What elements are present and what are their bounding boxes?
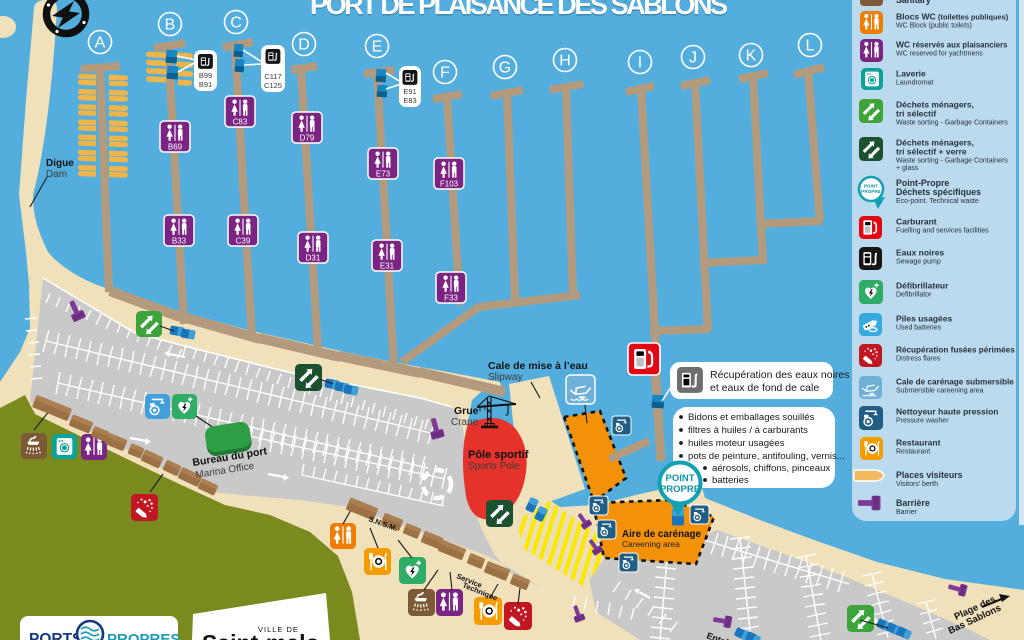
svg-text:WC reserved for yachtmens: WC reserved for yachtmens: [896, 51, 983, 58]
svg-text:Sanitary: Sanitary: [896, 0, 931, 5]
svg-text:PORT DE PLAISANCE DES SABLONS: PORT DE PLAISANCE DES SABLONS: [310, 0, 728, 20]
svg-text:E73: E73: [376, 170, 391, 179]
svg-text:Eco-point. Technical waste: Eco-point. Technical waste: [896, 198, 979, 205]
svg-text:Waste sorting - Garbage Contai: Waste sorting - Garbage Containers: [896, 158, 1008, 165]
svg-text:F33: F33: [444, 294, 458, 303]
svg-text:pots de peinture, antifouling,: pots de peinture, antifouling, vernis...: [688, 451, 845, 462]
svg-text:I: I: [638, 55, 642, 72]
svg-text:A: A: [95, 35, 106, 52]
svg-text:Sports Pole: Sports Pole: [468, 461, 520, 472]
svg-text:Eaux noires: Eaux noires: [896, 248, 944, 258]
svg-text:E31: E31: [380, 262, 395, 271]
svg-text:filtres à huiles / à carburant: filtres à huiles / à carburants: [688, 425, 808, 436]
svg-text:Pressure washer: Pressure washer: [896, 418, 949, 425]
svg-text:Restaurant: Restaurant: [896, 449, 930, 456]
svg-text:WC réservés aux plaisanciers: WC réservés aux plaisanciers: [896, 40, 1008, 50]
svg-text:POINT: POINT: [864, 184, 878, 189]
svg-text:Récupération des eaux noires: Récupération des eaux noires: [710, 369, 850, 381]
svg-text:Defibrillator: Defibrillator: [896, 292, 932, 299]
svg-text:Dam: Dam: [46, 169, 67, 180]
svg-text:L: L: [806, 38, 815, 55]
svg-text:Laundromat: Laundromat: [896, 80, 933, 87]
svg-text:Saint-malo: Saint-malo: [202, 630, 320, 640]
svg-text:batteries: batteries: [712, 475, 749, 486]
svg-text:G: G: [499, 60, 511, 77]
svg-text:Bidons et emballages souillés: Bidons et emballages souillés: [688, 412, 815, 423]
svg-text:C83: C83: [233, 118, 248, 127]
svg-text:E91: E91: [403, 87, 416, 96]
svg-text:Barrière: Barrière: [896, 498, 930, 508]
svg-text:tri sélectif + verre: tri sélectif + verre: [896, 147, 967, 157]
svg-text:Careening area: Careening area: [622, 539, 680, 549]
svg-text:B69: B69: [168, 143, 183, 152]
svg-text:C125: C125: [264, 81, 282, 90]
svg-text:Défibrillateur: Défibrillateur: [896, 281, 949, 291]
svg-text:F103: F103: [440, 180, 459, 189]
svg-text:Sewage pump: Sewage pump: [896, 259, 941, 266]
svg-text:Slipway: Slipway: [488, 372, 522, 383]
svg-text:Blocs WC (toilettes publiques): Blocs WC (toilettes publiques): [896, 12, 1009, 22]
svg-text:PROPRES: PROPRES: [107, 631, 180, 640]
svg-text:D79: D79: [300, 134, 315, 143]
svg-text:Used batteries: Used batteries: [896, 325, 942, 332]
svg-text:J: J: [689, 50, 697, 67]
svg-text:et eaux de fond de cale: et eaux de fond de cale: [710, 382, 819, 394]
svg-text:PORTS: PORTS: [29, 631, 82, 640]
svg-text:huiles moteur usagées: huiles moteur usagées: [688, 438, 785, 449]
svg-text:F: F: [440, 65, 450, 82]
svg-text:B99: B99: [199, 71, 212, 80]
svg-text:Waste sorting - Garbage Contai: Waste sorting - Garbage Containers: [896, 120, 1008, 127]
svg-text:Visitors’ berth: Visitors’ berth: [896, 481, 938, 488]
svg-text:Déchets spécifiques: Déchets spécifiques: [896, 187, 981, 197]
svg-text:Cale de carénage submersible: Cale de carénage submersible: [896, 378, 1014, 387]
svg-text:B: B: [165, 17, 176, 34]
svg-text:PROPRE: PROPRE: [660, 484, 700, 495]
svg-text:Submersible careening area: Submersible careening area: [896, 388, 984, 395]
svg-text:C39: C39: [236, 237, 251, 246]
svg-text:Pôle sportif: Pôle sportif: [468, 449, 529, 461]
svg-text:C: C: [230, 15, 242, 32]
svg-text:Carburant: Carburant: [896, 217, 937, 227]
svg-text:K: K: [746, 48, 757, 65]
svg-text:B33: B33: [172, 237, 187, 246]
svg-text:Digue: Digue: [46, 158, 74, 169]
svg-text:E: E: [372, 39, 383, 56]
svg-text:Nettoyeur haute pression: Nettoyeur haute pression: [896, 407, 999, 417]
svg-text:D: D: [298, 37, 310, 54]
svg-text:Distress flares: Distress flares: [896, 356, 941, 363]
svg-text:PROPRE: PROPRE: [861, 189, 880, 194]
svg-text:tri sélectif: tri sélectif: [896, 109, 936, 119]
svg-text:Récupération fusées périmées: Récupération fusées périmées: [896, 346, 1015, 355]
svg-text:POINT: POINT: [665, 473, 694, 484]
svg-text:aérosols, chiffons, pinceaux: aérosols, chiffons, pinceaux: [712, 463, 830, 474]
svg-text:C117: C117: [264, 72, 281, 81]
svg-text:Laverie: Laverie: [896, 69, 926, 79]
svg-text:+ glass: + glass: [896, 165, 919, 172]
svg-text:Fuelling and services faciliti: Fuelling and services facilities: [896, 228, 989, 235]
svg-text:Cale de mise à l’eau: Cale de mise à l’eau: [488, 360, 588, 372]
svg-text:WC Block (public toilets): WC Block (public toilets): [896, 23, 972, 30]
svg-text:Barrier: Barrier: [896, 509, 918, 516]
svg-text:E83: E83: [403, 96, 416, 105]
svg-text:B91: B91: [199, 80, 212, 89]
svg-text:Places visiteurs: Places visiteurs: [896, 470, 963, 480]
svg-text:Grue: Grue: [454, 405, 479, 417]
svg-text:Restaurant: Restaurant: [896, 438, 941, 448]
svg-text:Crane: Crane: [451, 417, 479, 428]
svg-text:Piles usagées: Piles usagées: [896, 314, 953, 324]
svg-text:H: H: [559, 53, 571, 70]
svg-text:D31: D31: [306, 254, 321, 263]
